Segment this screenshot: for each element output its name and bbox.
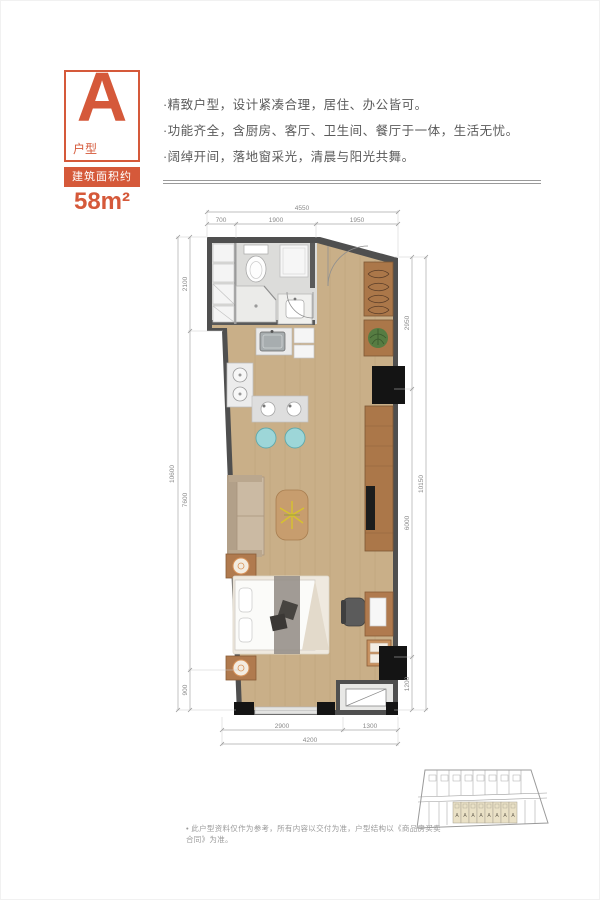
feature-line-3: ·阔绰开间，落地窗采光，清晨与阳光共舞。 xyxy=(163,151,553,164)
window-band xyxy=(255,707,317,714)
shaft-block-upper xyxy=(372,366,405,404)
area-value: 58m² xyxy=(64,188,140,216)
sofa-icon xyxy=(227,475,264,557)
floor-plan: 4550 700 1900 1950 10600 2100 7600 900 2… xyxy=(160,198,460,798)
dim-bottom-total: 4200 xyxy=(303,737,318,744)
double-rule-divider xyxy=(163,180,541,184)
dim-right-3: 1200 xyxy=(404,676,411,691)
sideboard-icon xyxy=(365,406,393,551)
dim-left-3: 900 xyxy=(182,684,189,695)
stool-icon-2 xyxy=(285,428,305,448)
stool-icon-1 xyxy=(256,428,276,448)
dim-top-3: 1950 xyxy=(350,217,365,224)
unit-badge: A 户型 xyxy=(64,70,140,162)
dim-left-2: 7600 xyxy=(182,492,189,507)
disclaimer-footnote: • 此户型资料仅作为参考，所有内容以交付为准，户型结构以《商品房买卖合同》为准。 xyxy=(186,823,446,845)
bar-counter-icon xyxy=(252,396,308,422)
dim-right-total: 10150 xyxy=(418,475,425,493)
stove-icon xyxy=(227,363,253,407)
tv-icon xyxy=(366,486,375,530)
kitchen-sink-icon xyxy=(260,330,285,351)
balcony-group xyxy=(336,680,393,710)
coffee-table-icon xyxy=(276,490,308,540)
nightstand-icon-1 xyxy=(226,554,256,578)
dim-top-1: 700 xyxy=(216,217,227,224)
dim-right-1: 2950 xyxy=(404,315,411,330)
bathroom-group xyxy=(212,243,317,325)
dim-left-1: 2100 xyxy=(182,276,189,291)
nightstand-icon-2 xyxy=(226,656,256,680)
washer-icon xyxy=(280,245,308,277)
feature-list: ·精致户型，设计紧凑合理，居住、办公皆可。 ·功能齐全，含厨房、客厅、卫生间、餐… xyxy=(163,99,553,177)
toilet-icon xyxy=(244,245,268,282)
bed-icon xyxy=(233,576,329,654)
area-label: 建筑面积约 xyxy=(64,167,140,187)
feature-line-2: ·功能齐全，含厨房、客厅、卫生间、餐厅于一体，生活无忧。 xyxy=(163,125,553,138)
wardrobe-icon xyxy=(364,262,393,316)
shaft-block-lower xyxy=(379,646,407,680)
dim-left-total: 10600 xyxy=(169,465,176,483)
unit-type-label: 户型 xyxy=(73,140,97,157)
highlighted-a-units: A A A A A A A A xyxy=(453,802,517,823)
chair-icon xyxy=(341,598,365,626)
dim-top-2: 1900 xyxy=(269,217,284,224)
plant-cabinet-icon xyxy=(364,320,393,356)
ac-unit-icon xyxy=(346,689,386,706)
dim-top-total: 4550 xyxy=(295,205,310,212)
unit-letter: A xyxy=(66,62,138,132)
dim-bottom-1: 2900 xyxy=(275,723,290,730)
vanity-sink-icon xyxy=(278,294,312,324)
dim-bottom-2: 1300 xyxy=(363,723,378,730)
dim-right-2: 6000 xyxy=(404,515,411,530)
feature-line-1: ·精致户型，设计紧凑合理，居住、办公皆可。 xyxy=(163,99,553,112)
desk-icon xyxy=(365,592,393,636)
